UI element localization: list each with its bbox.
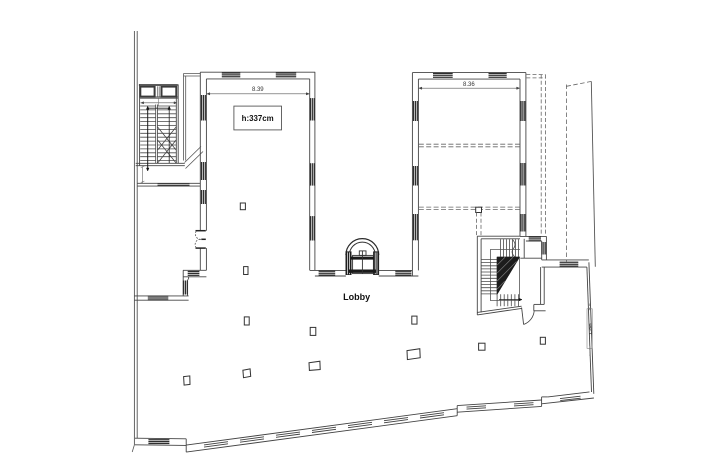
svg-text:1.35m: 1.35m <box>588 323 593 335</box>
svg-text:Lobby: Lobby <box>343 292 370 302</box>
svg-text:h:337cm: h:337cm <box>242 114 274 123</box>
svg-text:8.39: 8.39 <box>252 87 264 93</box>
svg-text:8.36: 8.36 <box>463 82 475 88</box>
